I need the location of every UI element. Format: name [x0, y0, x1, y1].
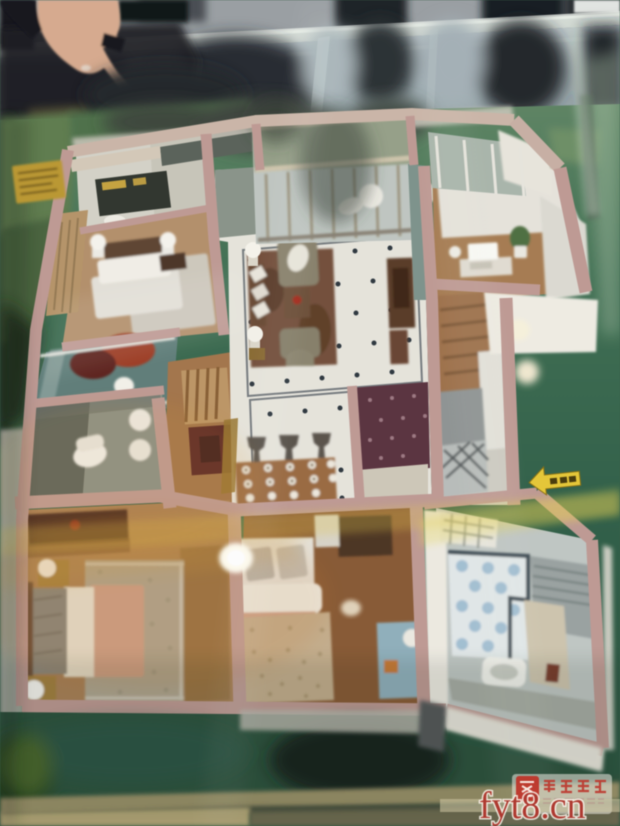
svg-text:fyt8.cn: fyt8.cn [479, 785, 586, 826]
